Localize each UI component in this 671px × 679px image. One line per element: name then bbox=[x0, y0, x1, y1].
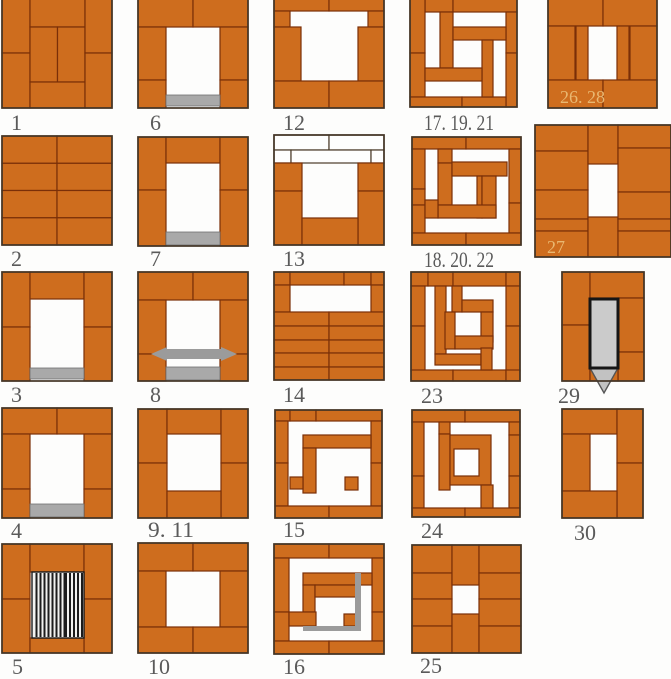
svg-text:24: 24 bbox=[421, 518, 443, 543]
svg-text:14: 14 bbox=[283, 382, 305, 407]
svg-text:5: 5 bbox=[12, 654, 23, 679]
svg-text:1: 1 bbox=[11, 110, 22, 135]
svg-text:3: 3 bbox=[11, 382, 22, 407]
svg-text:23: 23 bbox=[421, 383, 443, 408]
svg-text:18. 20. 22: 18. 20. 22 bbox=[424, 247, 494, 272]
svg-text:25: 25 bbox=[420, 653, 442, 678]
svg-text:26. 28: 26. 28 bbox=[560, 87, 605, 107]
svg-text:27: 27 bbox=[547, 237, 565, 257]
svg-text:13: 13 bbox=[283, 246, 305, 271]
svg-text:17. 19. 21: 17. 19. 21 bbox=[424, 110, 494, 135]
svg-text:12: 12 bbox=[283, 110, 305, 135]
svg-text:15: 15 bbox=[283, 517, 305, 542]
svg-text:2: 2 bbox=[11, 246, 22, 271]
svg-text:4: 4 bbox=[11, 518, 22, 543]
svg-text:16: 16 bbox=[283, 654, 305, 679]
svg-text:6: 6 bbox=[150, 110, 161, 135]
svg-text:7: 7 bbox=[150, 246, 161, 271]
svg-text:9. 11: 9. 11 bbox=[148, 517, 194, 542]
svg-text:30: 30 bbox=[574, 520, 596, 545]
svg-text:29: 29 bbox=[558, 383, 580, 408]
svg-text:10: 10 bbox=[148, 654, 170, 679]
svg-text:8: 8 bbox=[150, 382, 161, 407]
